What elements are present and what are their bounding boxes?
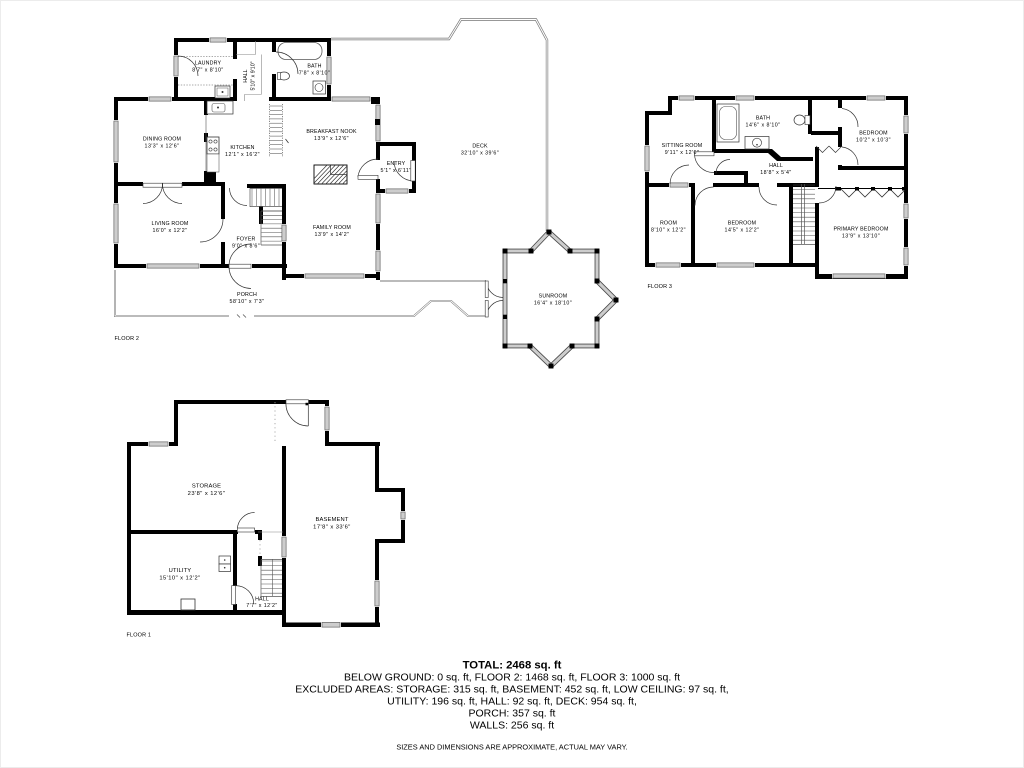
svg-text:13'3" x 12'6": 13'3" x 12'6" xyxy=(145,144,180,150)
svg-text:LAUNDRY: LAUNDRY xyxy=(195,61,222,67)
svg-text:PORCH: PORCH xyxy=(237,292,257,298)
svg-text:PORCH: 357 sq. ft: PORCH: 357 sq. ft xyxy=(469,708,556,720)
svg-text:12'1" x 16'2": 12'1" x 16'2" xyxy=(225,152,260,158)
svg-text:HALL: HALL xyxy=(769,163,783,169)
svg-text:8'7" x 8'10": 8'7" x 8'10" xyxy=(192,68,224,74)
svg-text:FLOOR 1: FLOOR 1 xyxy=(127,633,152,639)
svg-text:7'7" x 12'2": 7'7" x 12'2" xyxy=(246,603,278,609)
svg-text:5'10" x 9'10": 5'10" x 9'10" xyxy=(251,61,257,90)
svg-text:FLOOR 2: FLOOR 2 xyxy=(115,336,140,342)
svg-text:18'8" x 5'4": 18'8" x 5'4" xyxy=(760,170,792,176)
svg-text:SIZES AND DIMENSIONS ARE APPRO: SIZES AND DIMENSIONS ARE APPROXIMATE, AC… xyxy=(396,743,627,752)
svg-text:EXCLUDED AREAS: STORAGE: 315 s: EXCLUDED AREAS: STORAGE: 315 sq. ft, BAS… xyxy=(295,684,728,696)
svg-text:FLOOR 3: FLOOR 3 xyxy=(648,284,673,290)
svg-text:DINING ROOM: DINING ROOM xyxy=(143,137,181,143)
svg-text:16'4" x 18'10": 16'4" x 18'10" xyxy=(534,301,572,307)
svg-text:9'11" x 12'6": 9'11" x 12'6" xyxy=(665,150,700,156)
svg-text:58'10" x 7'3": 58'10" x 7'3" xyxy=(230,299,265,305)
svg-text:13'9" x 12'6": 13'9" x 12'6" xyxy=(314,136,349,142)
svg-text:BEDROOM: BEDROOM xyxy=(859,131,887,137)
svg-text:HALL: HALL xyxy=(255,597,269,603)
svg-text:FOYER: FOYER xyxy=(237,237,256,243)
svg-text:STORAGE: STORAGE xyxy=(192,484,221,490)
svg-text:9'0" x 8'6": 9'0" x 8'6" xyxy=(232,244,260,250)
svg-text:17'8" x 33'6": 17'8" x 33'6" xyxy=(313,525,351,531)
svg-text:7'8" x 8'10": 7'8" x 8'10" xyxy=(299,71,331,77)
svg-text:TOTAL: 2468 sq. ft: TOTAL: 2468 sq. ft xyxy=(463,660,562,672)
svg-text:BASEMENT: BASEMENT xyxy=(315,517,348,523)
svg-text:16'0" x 12'2": 16'0" x 12'2" xyxy=(153,228,188,234)
svg-text:ENTRY: ENTRY xyxy=(387,161,406,167)
svg-text:BELOW GROUND: 0 sq. ft, FLOOR: BELOW GROUND: 0 sq. ft, FLOOR 2: 1468 sq… xyxy=(344,672,680,684)
svg-text:14'5" x 12'2": 14'5" x 12'2" xyxy=(725,228,760,234)
svg-text:BATH: BATH xyxy=(756,116,770,122)
svg-text:ROOM: ROOM xyxy=(660,221,677,227)
svg-text:BREAKFAST NOOK: BREAKFAST NOOK xyxy=(306,129,357,135)
svg-text:UTILITY: UTILITY xyxy=(169,568,192,574)
svg-text:LIVING ROOM: LIVING ROOM xyxy=(152,221,189,227)
svg-text:32'10" x 39'6": 32'10" x 39'6" xyxy=(461,151,499,157)
svg-text:FAMILY ROOM: FAMILY ROOM xyxy=(313,225,351,231)
svg-text:DECK: DECK xyxy=(472,144,488,150)
svg-text:SUNROOM: SUNROOM xyxy=(539,294,568,300)
svg-text:BATH: BATH xyxy=(307,64,321,70)
svg-text:SITTING ROOM: SITTING ROOM xyxy=(662,143,703,149)
svg-text:HALL: HALL xyxy=(243,69,249,82)
svg-text:23'8" x 12'6": 23'8" x 12'6" xyxy=(188,491,226,497)
svg-text:8'10" x 12'2": 8'10" x 12'2" xyxy=(651,228,686,234)
svg-text:13'9" x 14'2": 13'9" x 14'2" xyxy=(315,232,350,238)
svg-text:BEDROOM: BEDROOM xyxy=(728,221,756,227)
svg-text:10'2" x 10'3": 10'2" x 10'3" xyxy=(856,138,891,144)
svg-text:UTILITY: 196 sq. ft, HALL: 92: UTILITY: 196 sq. ft, HALL: 92 sq. ft, DE… xyxy=(387,696,637,708)
svg-text:PRIMARY BEDROOM: PRIMARY BEDROOM xyxy=(833,227,888,233)
svg-text:WALLS: 256 sq. ft: WALLS: 256 sq. ft xyxy=(470,720,554,732)
svg-text:KITCHEN: KITCHEN xyxy=(230,145,254,151)
svg-text:13'9" x 13'10": 13'9" x 13'10" xyxy=(842,234,880,240)
svg-text:14'6" x 8'10": 14'6" x 8'10" xyxy=(746,123,781,129)
svg-text:5'1" x 6'11": 5'1" x 6'11" xyxy=(380,168,411,174)
svg-text:15'10" x 12'2": 15'10" x 12'2" xyxy=(159,576,200,582)
